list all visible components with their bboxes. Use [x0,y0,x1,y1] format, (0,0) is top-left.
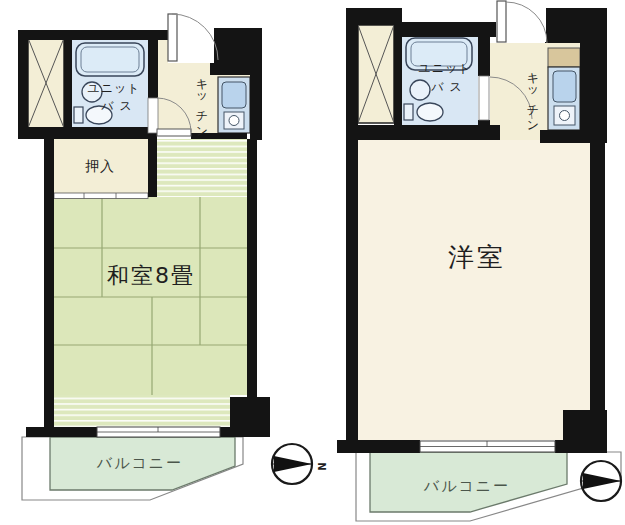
left-unit-bath-label-line1: ユニット [87,82,140,94]
left-room-label: 和室8畳 [107,265,195,287]
left-tatami-room-floor [54,197,247,395]
kitchen-sink-icon [553,71,576,102]
left-closet-label: 押入 [85,159,115,173]
right-room-label: 洋室 [448,244,506,270]
right-unit-bath-label-line1: ユニット [418,62,471,74]
left-kitchen-label: キッチン [196,71,208,134]
north-label: N [316,462,326,471]
stove-burner-icon [229,116,239,126]
toilet-tank-icon [404,104,413,120]
compass-icon [272,444,312,484]
left-entrance-door-leaf [168,14,177,61]
left-room-door-leaf [157,129,191,136]
left-flooring-strip-bottom [54,395,230,428]
left-bath-doorway [148,98,158,133]
washbasin-icon [410,80,430,100]
left-plan [18,13,312,500]
toilet-tank-icon [74,107,83,123]
right-bath-doorway [479,76,489,120]
toilet-icon [417,103,443,121]
bathtub-icon [76,43,144,76]
left-flooring-strip-top [157,139,247,197]
left-unit-bath-label-line2: バ ス [101,100,132,112]
right-entrance-door-leaf [497,1,506,42]
right-western-room-floor [358,140,590,440]
floorplan-canvas: ユニット バ ス キッチン 押入 和室8畳 バルコニー N ユニット バ ス キ… [0,0,625,525]
compass-icon [581,461,621,501]
right-kitchen-label: キッチン [527,65,539,128]
right-kitchen-counter [548,48,580,67]
right-unit-bath-label-line2: バ ス [431,81,462,93]
closet-sliding-door [54,193,148,199]
stove-burner-icon [560,111,570,121]
kitchen-sink-icon [222,82,246,108]
left-balcony-label: バルコニー [97,456,183,471]
right-balcony-label: バルコニー [424,479,510,494]
